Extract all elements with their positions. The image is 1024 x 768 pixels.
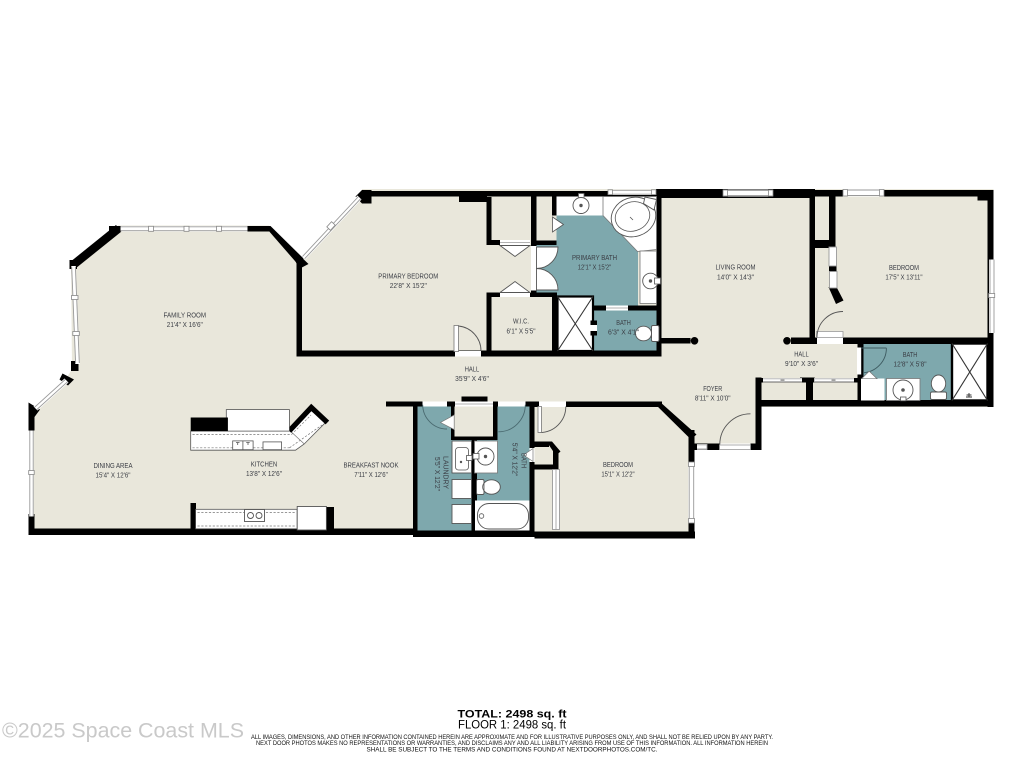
svg-text:9'10" X 3'6": 9'10" X 3'6" — [785, 359, 818, 368]
svg-text:BATH: BATH — [903, 350, 918, 359]
svg-text:TOTAL: 2498 sq. ft: TOTAL: 2498 sq. ft — [458, 709, 567, 721]
svg-text:12'8" X 5'8": 12'8" X 5'8" — [894, 359, 927, 368]
svg-text:BATH: BATH — [520, 453, 529, 468]
svg-text:21'4" X 16'6": 21'4" X 16'6" — [167, 320, 203, 329]
svg-text:FAMILY ROOM: FAMILY ROOM — [164, 311, 207, 320]
svg-text:KITCHEN: KITCHEN — [251, 459, 278, 468]
svg-text:15'4" X 12'6": 15'4" X 12'6" — [96, 471, 131, 480]
svg-text:6'3" X 4'1": 6'3" X 4'1" — [608, 327, 639, 336]
svg-text:FOYER: FOYER — [703, 384, 722, 393]
svg-text:8'11" X 10'0": 8'11" X 10'0" — [695, 394, 731, 403]
svg-text:PRIMARY BEDROOM: PRIMARY BEDROOM — [378, 271, 438, 280]
svg-text:BREAKFAST NOOK: BREAKFAST NOOK — [344, 461, 399, 470]
svg-text:15'1" X 12'2": 15'1" X 12'2" — [601, 469, 635, 478]
svg-text:FLOOR 1: 2498 sq. ft: FLOOR 1: 2498 sq. ft — [458, 720, 567, 732]
svg-text:BEDROOM: BEDROOM — [603, 460, 633, 469]
svg-text:5'4" X 12'2": 5'4" X 12'2" — [511, 443, 520, 477]
svg-text:22'8" X 15'2": 22'8" X 15'2" — [390, 281, 427, 290]
svg-text:5'5" X 12'2": 5'5" X 12'2" — [433, 457, 442, 491]
svg-text:©2025 Space Coast MLS: ©2025 Space Coast MLS — [2, 719, 244, 742]
svg-text:SHALL BE SUBJECT TO THE TERMS: SHALL BE SUBJECT TO THE TERMS AND CONDIT… — [367, 746, 658, 753]
svg-text:HALL: HALL — [465, 365, 480, 374]
svg-text:7'11" X 12'6": 7'11" X 12'6" — [354, 470, 388, 479]
svg-text:13'8" X 12'6": 13'8" X 12'6" — [246, 469, 282, 478]
svg-text:W.I.C.: W.I.C. — [513, 317, 529, 326]
svg-text:BATH: BATH — [616, 318, 631, 327]
svg-text:LIVING ROOM: LIVING ROOM — [716, 263, 756, 272]
svg-text:35'9" X 4'6": 35'9" X 4'6" — [455, 374, 489, 383]
svg-text:14'0" X 14'3": 14'0" X 14'3" — [717, 272, 754, 281]
svg-text:BEDROOM: BEDROOM — [889, 263, 919, 272]
svg-text:17'5" X 13'11": 17'5" X 13'11" — [885, 272, 922, 281]
svg-text:PRIMARY BATH: PRIMARY BATH — [572, 253, 617, 262]
svg-text:6'1" X 5'5": 6'1" X 5'5" — [507, 326, 536, 335]
svg-text:12'1" X 15'2": 12'1" X 15'2" — [578, 262, 612, 271]
svg-text:DINING AREA: DINING AREA — [94, 461, 133, 470]
svg-text:HALL: HALL — [794, 350, 809, 359]
